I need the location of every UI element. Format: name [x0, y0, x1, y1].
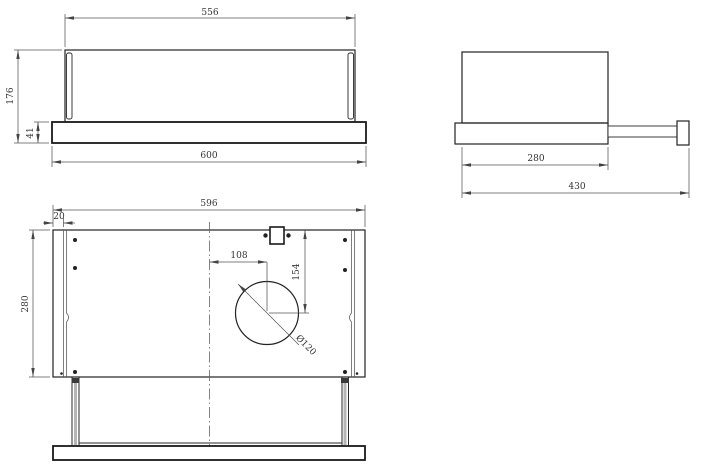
dim-front-width-base: 600: [52, 146, 366, 167]
dim-bottom-width: 596: [53, 199, 365, 227]
dim-bottom-depth: 280: [21, 230, 50, 377]
dim-label-556: 556: [201, 8, 218, 18]
drawing-svg: 556 600 176 41: [0, 0, 701, 471]
side-view: 280 430: [455, 52, 689, 198]
bottom-view: 596 20 280 108 154: [21, 199, 365, 460]
side-rod-end-cap: [677, 121, 689, 145]
dim-label-280-side: 280: [527, 154, 544, 164]
dim-front-base-height: 41: [26, 122, 49, 143]
dim-label-108: 108: [230, 251, 247, 261]
dim-side-depth-total: 430: [462, 148, 689, 198]
front-handle-bar: [53, 446, 365, 460]
dim-label-280-bottom: 280: [21, 295, 31, 312]
side-slide-rod: [608, 126, 677, 137]
dim-label-176: 176: [6, 87, 16, 104]
front-base-panel: [52, 122, 366, 143]
dim-label-41: 41: [26, 127, 36, 138]
left-rail-bracket: [72, 378, 80, 383]
dim-label-596: 596: [200, 199, 217, 209]
dim-hole-offset-x: 108: [210, 251, 268, 311]
dim-bottom-side-inset: 20: [43, 212, 75, 227]
side-base-band: [455, 123, 608, 144]
bottom-plate-outline: [53, 230, 365, 377]
front-view: 556 600 176 41: [6, 8, 366, 167]
technical-drawing-page: 556 600 176 41: [0, 0, 701, 471]
dim-label-430: 430: [568, 182, 585, 192]
right-rail-bracket: [341, 378, 349, 383]
front-left-end-strip: [67, 53, 73, 119]
dim-label-600: 600: [200, 151, 217, 161]
dim-hole-diameter: Ø120: [238, 284, 319, 358]
side-body-outline: [462, 52, 608, 123]
dim-label-diameter-120: Ø120: [293, 333, 318, 358]
dim-label-154: 154: [292, 263, 302, 280]
front-body-outline: [65, 50, 355, 122]
front-right-end-strip: [348, 53, 354, 119]
dim-label-20: 20: [53, 212, 65, 222]
dim-front-width-top: 556: [65, 8, 355, 47]
bottom-slide-visor: [53, 377, 365, 460]
dim-side-depth-body: 280: [462, 147, 608, 198]
